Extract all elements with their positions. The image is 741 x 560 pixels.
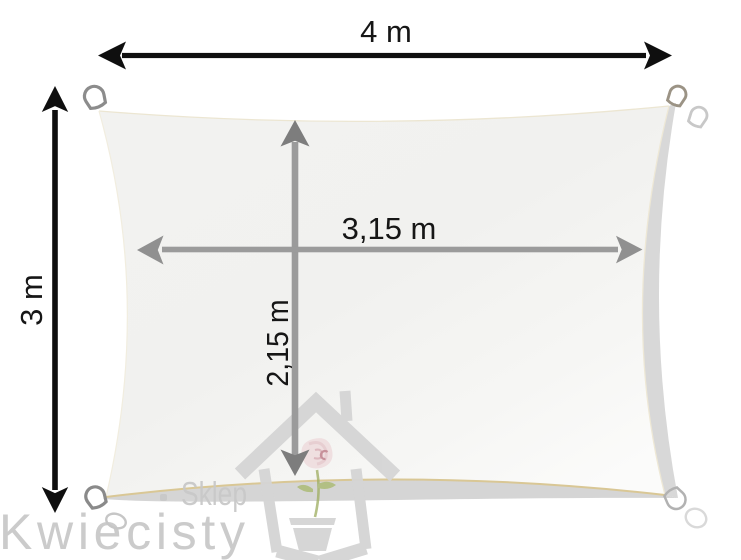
svg-text:3 m: 3 m	[14, 274, 49, 326]
svg-text:3,15 m: 3,15 m	[342, 211, 437, 246]
svg-text:4 m: 4 m	[360, 14, 412, 49]
svg-text:2,15 m: 2,15 m	[261, 299, 295, 386]
svg-text:Kwiecisty: Kwiecisty	[0, 504, 250, 560]
